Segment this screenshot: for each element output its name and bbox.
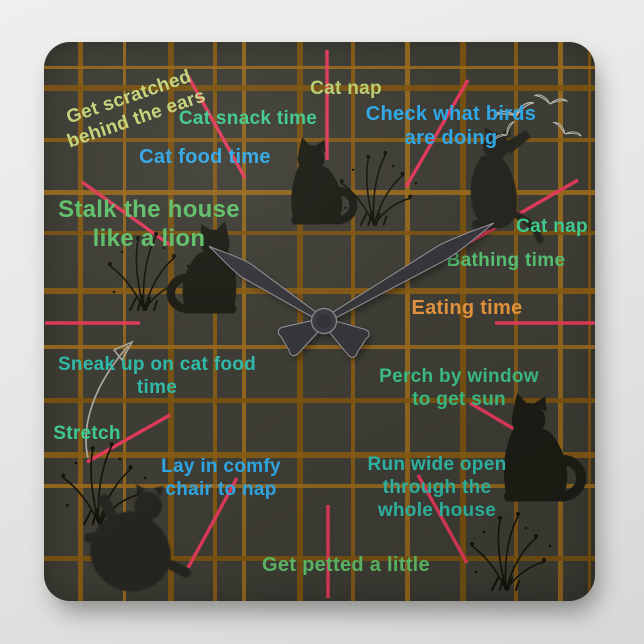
cat-schedule-wall-clock: Get scratched behind the ears Cat snack … bbox=[44, 42, 595, 601]
center-hub-inner bbox=[317, 314, 331, 328]
minute-hand bbox=[277, 210, 502, 358]
clock-hands-layer bbox=[44, 42, 595, 601]
product-photo-page: { "page": { "description_colors": { "bac… bbox=[0, 0, 644, 644]
